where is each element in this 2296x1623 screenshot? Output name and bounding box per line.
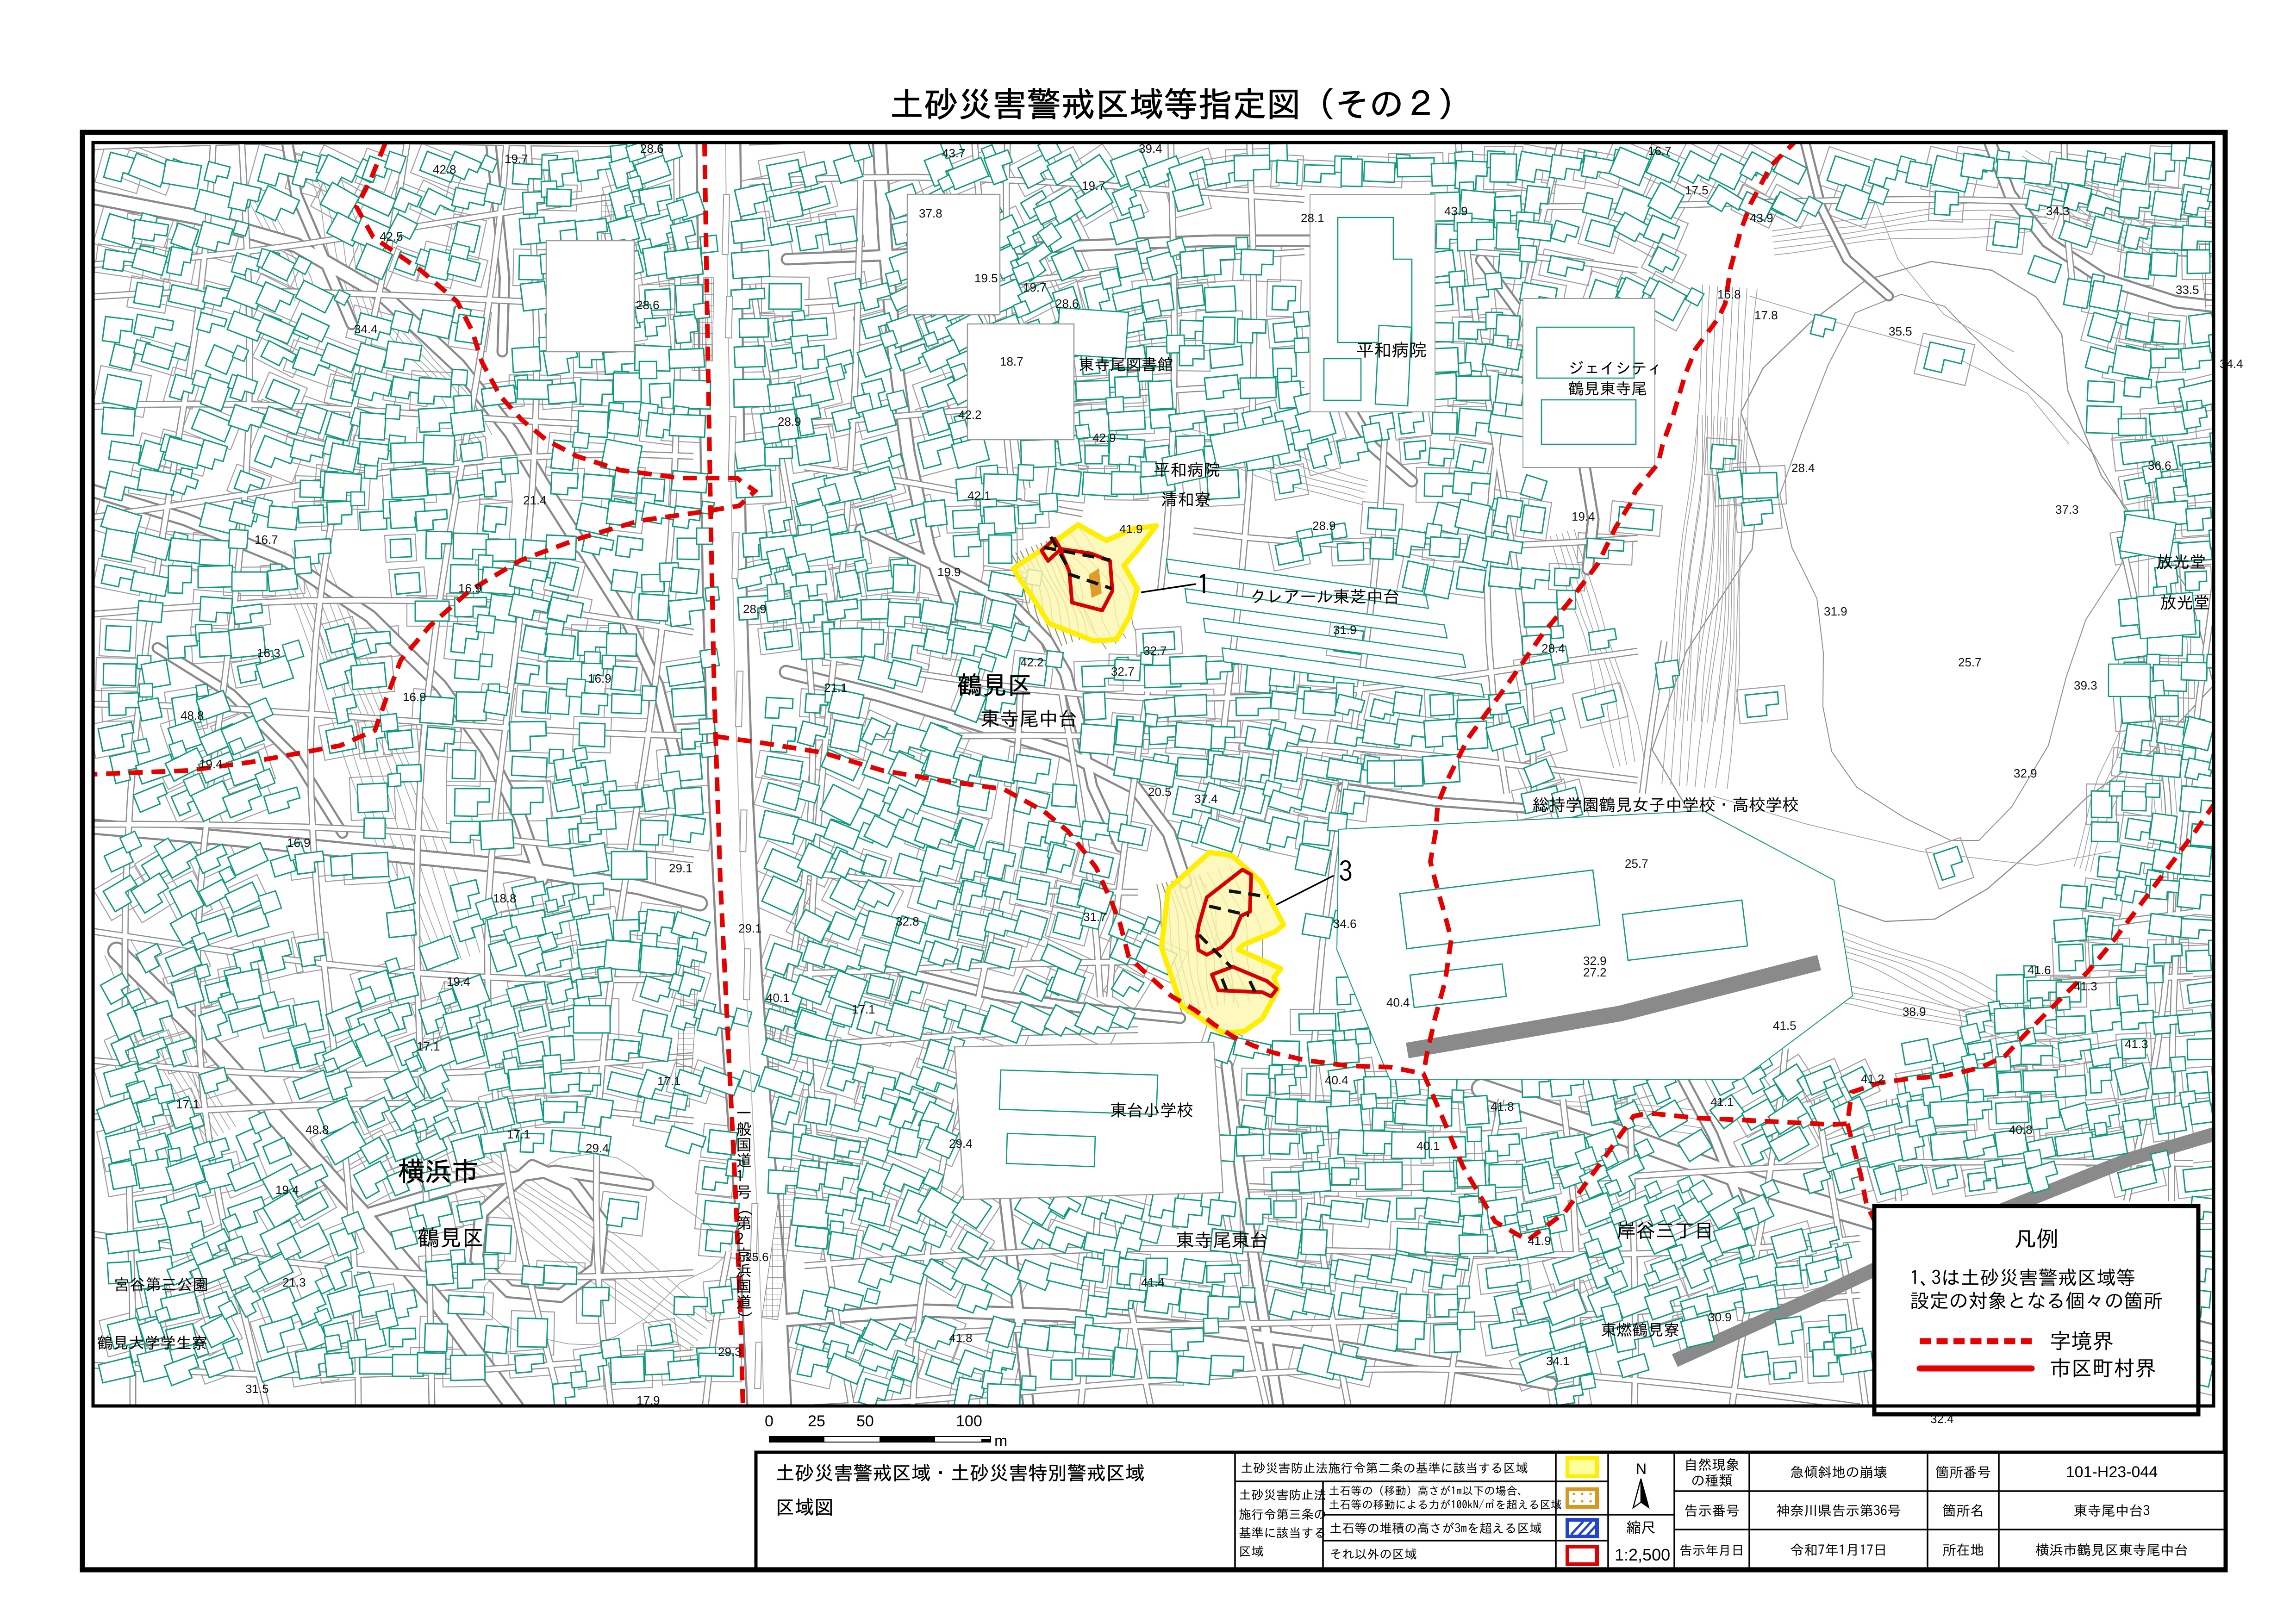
svg-text:42.1: 42.1 [967,489,991,503]
svg-text:25.7: 25.7 [1958,655,1982,669]
svg-text:41.8: 41.8 [1491,1100,1514,1113]
svg-text:19.7: 19.7 [505,152,528,166]
svg-text:17.1: 17.1 [657,1074,681,1088]
svg-text:40.8: 40.8 [2009,1123,2033,1137]
svg-text:18.7: 18.7 [1000,354,1023,368]
svg-text:19.4: 19.4 [275,1183,299,1197]
svg-text:36.6: 36.6 [2148,459,2171,473]
svg-text:28.1: 28.1 [1301,211,1324,225]
svg-text:41.4: 41.4 [1141,1275,1165,1289]
svg-text:37.3: 37.3 [2055,503,2079,516]
svg-text:34.3: 34.3 [2046,204,2070,218]
svg-text:41.5: 41.5 [1773,1019,1797,1032]
svg-text:41.3: 41.3 [2074,979,2097,993]
svg-text:0: 0 [765,1412,774,1430]
svg-text:28.6: 28.6 [636,298,660,312]
svg-text:28.4: 28.4 [1791,461,1815,475]
svg-text:101-H23-044: 101-H23-044 [2066,1463,2158,1481]
svg-text:19.4: 19.4 [1572,510,1595,523]
svg-text:28.9: 28.9 [778,415,801,429]
svg-text:100: 100 [956,1412,982,1430]
svg-text:17.5: 17.5 [1685,183,1709,197]
svg-text:41.8: 41.8 [949,1331,973,1345]
svg-text:31.9: 31.9 [1824,604,1847,618]
svg-text:41.3: 41.3 [2125,1037,2148,1051]
svg-text:40.4: 40.4 [1386,995,1410,1009]
svg-text:16.9: 16.9 [403,690,426,704]
svg-text:16.9: 16.9 [458,581,482,595]
svg-text:43.9: 43.9 [1444,204,1468,218]
svg-text:42.8: 42.8 [433,162,456,176]
svg-text:19.9: 19.9 [937,565,961,579]
svg-text:19.5: 19.5 [974,271,998,285]
svg-text:40.1: 40.1 [766,991,790,1005]
svg-text:29.4: 29.4 [949,1137,973,1150]
svg-text:17.1: 17.1 [176,1097,200,1111]
svg-text:43.9: 43.9 [1750,211,1773,225]
svg-text:25: 25 [808,1412,825,1430]
svg-text:17.1: 17.1 [507,1127,530,1141]
svg-text:25.6: 25.6 [745,1250,769,1264]
svg-text:16.9: 16.9 [588,672,611,685]
svg-text:39.3: 39.3 [2074,678,2097,692]
svg-text:16.3: 16.3 [257,646,281,660]
svg-text:41.6: 41.6 [2028,963,2051,977]
svg-text:31.9: 31.9 [1333,623,1357,637]
svg-text:31.5: 31.5 [245,1382,269,1396]
svg-text:42.9: 42.9 [1092,431,1116,445]
svg-text:1:2,500: 1:2,500 [1615,1545,1670,1564]
svg-text:28.6: 28.6 [1055,297,1079,311]
svg-text:41.9: 41.9 [1528,1234,1551,1248]
svg-text:50: 50 [856,1412,874,1430]
svg-text:16.9: 16.9 [287,836,311,850]
svg-text:N: N [1636,1461,1647,1477]
svg-text:19.7: 19.7 [1023,280,1047,294]
svg-text:48.8: 48.8 [181,709,204,722]
svg-text:32.7: 32.7 [1143,644,1167,658]
svg-text:42.2: 42.2 [958,408,982,422]
svg-text:41.2: 41.2 [1861,1072,1884,1086]
svg-text:19.4: 19.4 [447,975,470,989]
svg-text:29.3: 29.3 [718,1345,742,1359]
svg-text:19.7: 19.7 [1082,179,1105,193]
svg-text:48.8: 48.8 [306,1123,329,1137]
svg-text:17.8: 17.8 [1754,308,1778,322]
svg-text:37.8: 37.8 [919,206,942,220]
svg-text:35.5: 35.5 [1889,324,1912,338]
svg-text:37.4: 37.4 [1194,792,1218,806]
svg-text:43.7: 43.7 [942,146,966,160]
svg-text:17.1: 17.1 [417,1039,440,1053]
svg-text:18.8: 18.8 [493,891,517,905]
svg-text:16.7: 16.7 [1648,144,1672,158]
svg-text:32.9: 32.9 [2014,766,2037,780]
svg-text:32.4: 32.4 [1930,1412,1954,1426]
svg-text:20.5: 20.5 [1148,785,1172,799]
svg-text:30.9: 30.9 [1708,1310,1732,1324]
svg-text:28.9: 28.9 [1312,519,1336,533]
svg-text:21.1: 21.1 [824,681,848,695]
svg-text:29.4: 29.4 [586,1141,609,1155]
svg-text:34.1: 34.1 [1546,1354,1570,1368]
svg-text:21.3: 21.3 [282,1275,306,1289]
svg-text:m: m [994,1432,1007,1450]
svg-text:32.8: 32.8 [896,914,919,928]
svg-text:28.9: 28.9 [743,602,767,616]
svg-text:28.4: 28.4 [1541,641,1565,655]
svg-text:27.2: 27.2 [1583,965,1607,979]
svg-text:34.6: 34.6 [1333,917,1357,931]
svg-text:42.5: 42.5 [380,230,403,243]
svg-text:34.4: 34.4 [354,322,378,336]
svg-text:19.4: 19.4 [199,757,223,771]
svg-text:42.2: 42.2 [1020,655,1044,669]
svg-text:40.4: 40.4 [1325,1073,1348,1087]
svg-text:16.8: 16.8 [1717,287,1741,301]
svg-text:29.1: 29.1 [669,861,693,875]
svg-text:41.9: 41.9 [1119,522,1143,536]
svg-text:33.5: 33.5 [2176,283,2199,297]
svg-text:41.1: 41.1 [1710,1095,1734,1109]
svg-text:17.1: 17.1 [852,1002,875,1016]
svg-text:21.4: 21.4 [523,493,547,507]
svg-text:29.1: 29.1 [738,921,762,935]
svg-text:25.7: 25.7 [1625,857,1648,871]
svg-text:16.7: 16.7 [255,533,278,547]
svg-text:32.7: 32.7 [1111,665,1135,678]
svg-text:40.1: 40.1 [1416,1139,1440,1153]
svg-text:31.7: 31.7 [1083,910,1107,924]
svg-text:38.9: 38.9 [1903,1005,1926,1019]
